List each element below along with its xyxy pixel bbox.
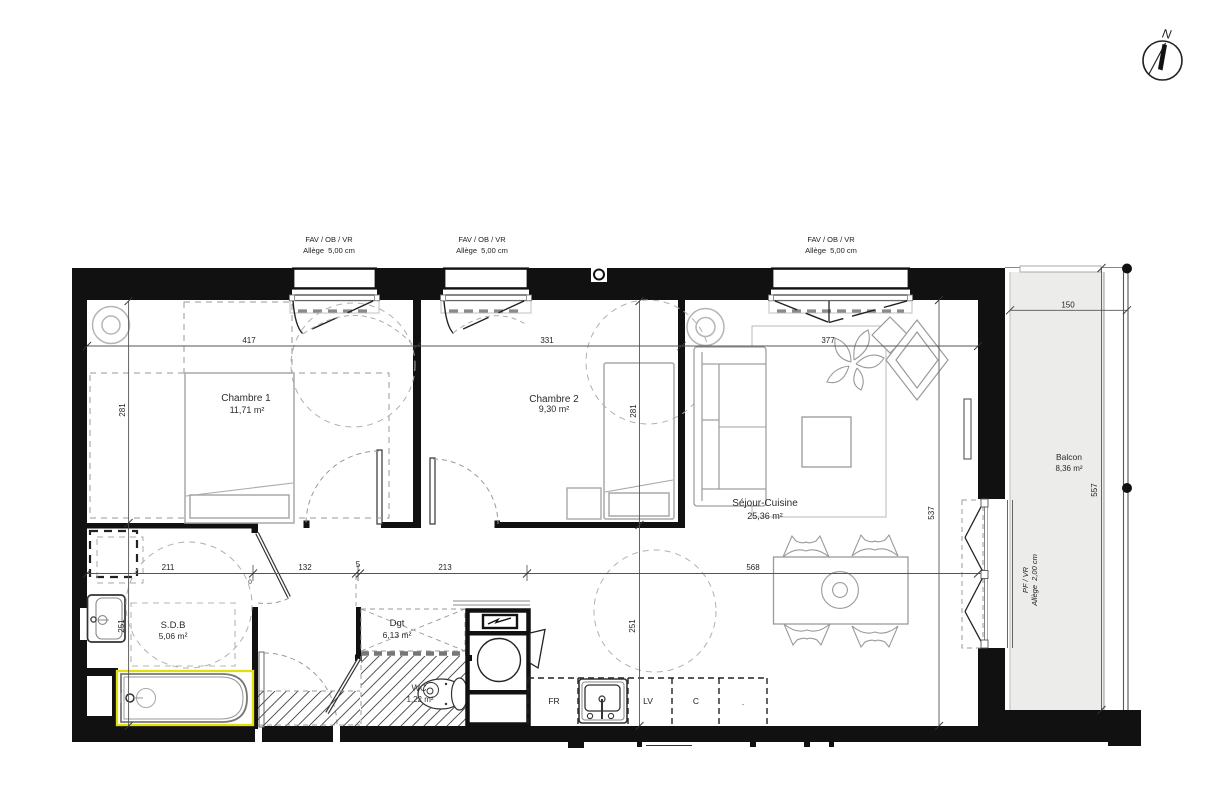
svg-text:417: 417 xyxy=(242,336,256,345)
svg-text:5,06 m²: 5,06 m² xyxy=(159,631,188,641)
svg-text:251: 251 xyxy=(628,619,637,633)
svg-text:537: 537 xyxy=(927,506,936,520)
svg-text:Balcon: Balcon xyxy=(1056,452,1082,462)
svg-text:Allège 5,00 cm: Allège 5,00 cm xyxy=(805,246,857,255)
svg-text:FAV / OB / VR: FAV / OB / VR xyxy=(458,235,506,244)
svg-text:11,71 m²: 11,71 m² xyxy=(230,405,265,415)
svg-text:25,36 m²: 25,36 m² xyxy=(747,511,783,521)
svg-text:Dgt: Dgt xyxy=(390,618,405,629)
svg-text:557: 557 xyxy=(1090,483,1099,497)
svg-text:568: 568 xyxy=(746,563,760,572)
svg-text:251: 251 xyxy=(117,619,126,633)
svg-text:377: 377 xyxy=(821,336,835,345)
svg-text:281: 281 xyxy=(629,404,638,418)
svg-text:FR: FR xyxy=(548,696,559,706)
svg-text:0: 0 xyxy=(248,579,252,586)
svg-text:213: 213 xyxy=(438,563,452,572)
svg-text:5: 5 xyxy=(356,560,361,569)
svg-text:C: C xyxy=(693,696,699,706)
svg-text:211: 211 xyxy=(162,563,175,572)
svg-text:Allège 5,00 cm: Allège 5,00 cm xyxy=(456,246,508,255)
svg-text:LV: LV xyxy=(643,696,653,706)
svg-text:S.D.B: S.D.B xyxy=(161,620,186,631)
svg-text:FAV / OB / VR: FAV / OB / VR xyxy=(807,235,855,244)
svg-text:Chambre 1: Chambre 1 xyxy=(221,393,271,404)
svg-text:281: 281 xyxy=(118,403,127,417)
svg-text:9,30 m²: 9,30 m² xyxy=(539,404,570,414)
svg-text:1,22 m²: 1,22 m² xyxy=(406,695,433,704)
svg-text:132: 132 xyxy=(298,563,312,572)
svg-text:331: 331 xyxy=(540,336,554,345)
svg-text:FAV / OB / VR: FAV / OB / VR xyxy=(305,235,353,244)
svg-text:WC: WC xyxy=(412,683,427,693)
svg-text:.: . xyxy=(742,697,744,707)
svg-text:150: 150 xyxy=(1061,301,1075,310)
svg-text:Allège 5,00 cm: Allège 5,00 cm xyxy=(303,246,355,255)
svg-text:Allège 2,00 cm: Allège 2,00 cm xyxy=(1030,554,1039,607)
svg-text:8,36 m²: 8,36 m² xyxy=(1055,464,1082,473)
svg-text:Séjour-Cuisine: Séjour-Cuisine xyxy=(732,498,798,509)
svg-text:PF / VR: PF / VR xyxy=(1021,566,1030,593)
svg-text:6,13 m²: 6,13 m² xyxy=(383,630,412,640)
